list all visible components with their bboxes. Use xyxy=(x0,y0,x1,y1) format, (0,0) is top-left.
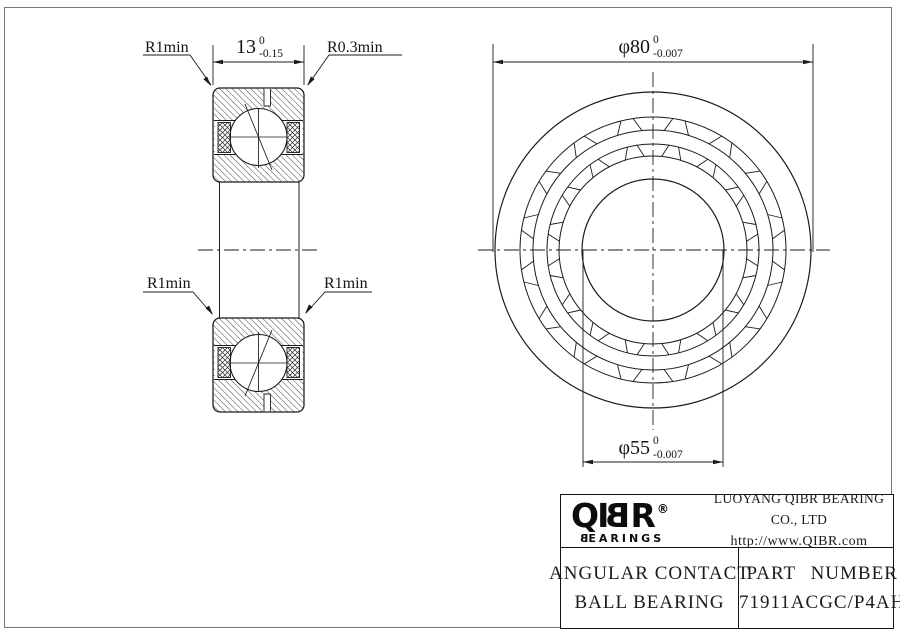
cage-pocket-line xyxy=(548,234,559,241)
section-upper-half xyxy=(213,88,304,182)
cage-pocket-line xyxy=(725,310,738,313)
od-dim-tol-lower: -0.007 xyxy=(653,48,683,60)
cage-pocket-line xyxy=(730,143,732,158)
cage-pocket-line xyxy=(637,344,644,355)
cage-pocket-line xyxy=(759,181,767,194)
cage-pocket-line xyxy=(625,340,627,353)
bore-dim-value: φ55 xyxy=(618,437,650,459)
cage-pocket-line xyxy=(679,147,681,160)
od-dim-tol-upper: 0 xyxy=(653,34,659,46)
cage-pocket-line xyxy=(584,356,597,364)
cage-pocket-line xyxy=(697,333,708,341)
cage-pocket-line xyxy=(709,356,722,364)
cage-pocket-line xyxy=(759,306,767,319)
cage-section-right-lower xyxy=(287,348,300,378)
dimension-arrowhead xyxy=(213,60,223,65)
cage-pocket-line xyxy=(662,145,669,156)
dimension-arrowhead xyxy=(305,305,313,315)
product-name-line2: BALL BEARING xyxy=(574,592,724,614)
dimension-arrowhead xyxy=(583,460,593,465)
width-dim-tol-upper: 0 xyxy=(259,35,265,47)
part-number-cell: PART NUMBER 71911ACGC/P4AH xyxy=(739,548,900,628)
bore-dim-tol-upper: 0 xyxy=(653,435,659,447)
cage-pocket-line xyxy=(736,195,744,206)
cage-section-left-lower xyxy=(218,348,231,378)
cage-pocket-line xyxy=(546,327,561,329)
cage-pocket-line xyxy=(662,344,669,355)
cage-pocket-line xyxy=(618,365,622,380)
cage-pocket-line xyxy=(584,136,597,144)
bore-dim-tol-lower: -0.007 xyxy=(653,449,683,461)
cage-pocket-line xyxy=(713,322,716,335)
cage-pocket-line xyxy=(539,306,547,319)
cage-pocket-line xyxy=(730,342,732,357)
cage-pocket-line xyxy=(546,171,561,173)
leader-bottom-right xyxy=(306,292,372,313)
product-name-line1: ANGULAR CONTACT xyxy=(549,563,750,585)
registered-trademark-icon: ® xyxy=(657,502,669,516)
engineering-drawing-sheet: 13 0 -0.15 R1min R0.3min R1min R1min φ80… xyxy=(0,0,900,636)
leader-top-left xyxy=(143,55,211,85)
cage-pocket-line xyxy=(522,261,534,270)
width-dim-tol-lower: -0.15 xyxy=(259,48,283,60)
cage-pocket-line xyxy=(598,333,609,341)
load-notch-fill xyxy=(264,89,271,106)
cage-pocket-line xyxy=(743,276,756,278)
logo-subtitle: BEARINGS xyxy=(571,533,709,544)
cage-pocket-line xyxy=(713,165,716,178)
cage-pocket-line xyxy=(747,234,758,241)
cage-pocket-line xyxy=(664,370,673,382)
cage-pocket-line xyxy=(568,310,581,313)
radius-label-top-left: R1min xyxy=(145,39,189,56)
cage-pocket-line xyxy=(562,195,570,206)
cage-pocket-line xyxy=(590,322,593,335)
section-lower-half xyxy=(213,318,304,412)
dimension-arrowhead xyxy=(203,77,211,87)
cage-pocket-line xyxy=(664,119,673,131)
title-block-detail-row: ANGULAR CONTACT BALL BEARING PART NUMBER… xyxy=(561,548,893,628)
cage-pocket-line xyxy=(590,165,593,178)
cage-pocket-line xyxy=(637,145,644,156)
cage-pocket-line xyxy=(685,365,689,380)
dimension-arrowhead xyxy=(493,60,503,65)
width-dim-value: 13 xyxy=(236,36,256,58)
section-view xyxy=(198,88,320,412)
cage-pocket-line xyxy=(773,230,785,239)
cage-pocket-line xyxy=(768,215,783,219)
cage-pocket-line xyxy=(709,136,722,144)
cage-pocket-line xyxy=(773,261,785,270)
cage-pocket-line xyxy=(768,282,783,286)
leader-top-right xyxy=(308,55,402,85)
cage-pocket-line xyxy=(618,121,622,135)
cage-pocket-line xyxy=(633,370,642,382)
cage-pocket-line xyxy=(625,147,627,160)
cage-pocket-line xyxy=(522,230,534,239)
company-info: LUOYANG QIBR BEARING CO., LTD http://www… xyxy=(709,489,893,553)
load-notch-fill-lower xyxy=(264,394,271,411)
cage-pocket-line xyxy=(685,121,689,135)
cage-pocket-line xyxy=(679,340,681,353)
company-name: LUOYANG QIBR BEARING CO., LTD xyxy=(709,489,889,531)
dimension-arrowhead xyxy=(803,60,813,65)
company-logo: QIBR® BEARINGS xyxy=(561,499,709,544)
cage-pocket-line xyxy=(743,222,756,224)
cage-pocket-line xyxy=(745,327,760,329)
radius-label-top-right: R0.3min xyxy=(327,39,383,56)
cage-pocket-line xyxy=(574,342,576,357)
radius-label-bottom-right: R1min xyxy=(324,275,368,292)
cage-pocket-line xyxy=(574,143,576,158)
cage-pocket-line xyxy=(745,171,760,173)
cage-pocket-line xyxy=(725,187,738,190)
dimension-arrowhead xyxy=(294,60,304,65)
cage-pocket-line xyxy=(539,181,547,194)
dimension-arrowhead xyxy=(205,306,213,316)
cage-section-right-upper xyxy=(287,123,300,153)
dimension-arrowhead xyxy=(713,460,723,465)
cage-pocket-line xyxy=(568,187,581,190)
cage-pocket-line xyxy=(548,259,559,266)
part-number-value: 71911ACGC/P4AH xyxy=(739,592,900,614)
cage-pocket-line xyxy=(633,119,642,131)
cage-pocket-line xyxy=(598,159,609,167)
logo-wordmark: QIBR® xyxy=(571,499,709,532)
cage-pocket-line xyxy=(697,159,708,167)
title-block-header-row: QIBR® BEARINGS LUOYANG QIBR BEARING CO.,… xyxy=(561,495,893,548)
cage-pocket-line xyxy=(736,294,744,305)
cage-pocket-line xyxy=(550,222,563,224)
cage-section-left-upper xyxy=(218,123,231,153)
cage-pocket-line xyxy=(524,215,539,219)
product-description-cell: ANGULAR CONTACT BALL BEARING xyxy=(561,548,739,628)
part-number-label: PART NUMBER xyxy=(746,563,897,585)
front-view xyxy=(478,72,830,430)
cage-pocket-line xyxy=(562,294,570,305)
od-dim-value: φ80 xyxy=(618,36,650,58)
cage-pocket-line xyxy=(524,282,539,286)
title-block: QIBR® BEARINGS LUOYANG QIBR BEARING CO.,… xyxy=(560,494,894,629)
leader-bottom-left xyxy=(143,292,212,314)
cage-pocket-line xyxy=(550,276,563,278)
radius-label-bottom-left: R1min xyxy=(147,275,191,292)
cage-pocket-line xyxy=(747,259,758,266)
